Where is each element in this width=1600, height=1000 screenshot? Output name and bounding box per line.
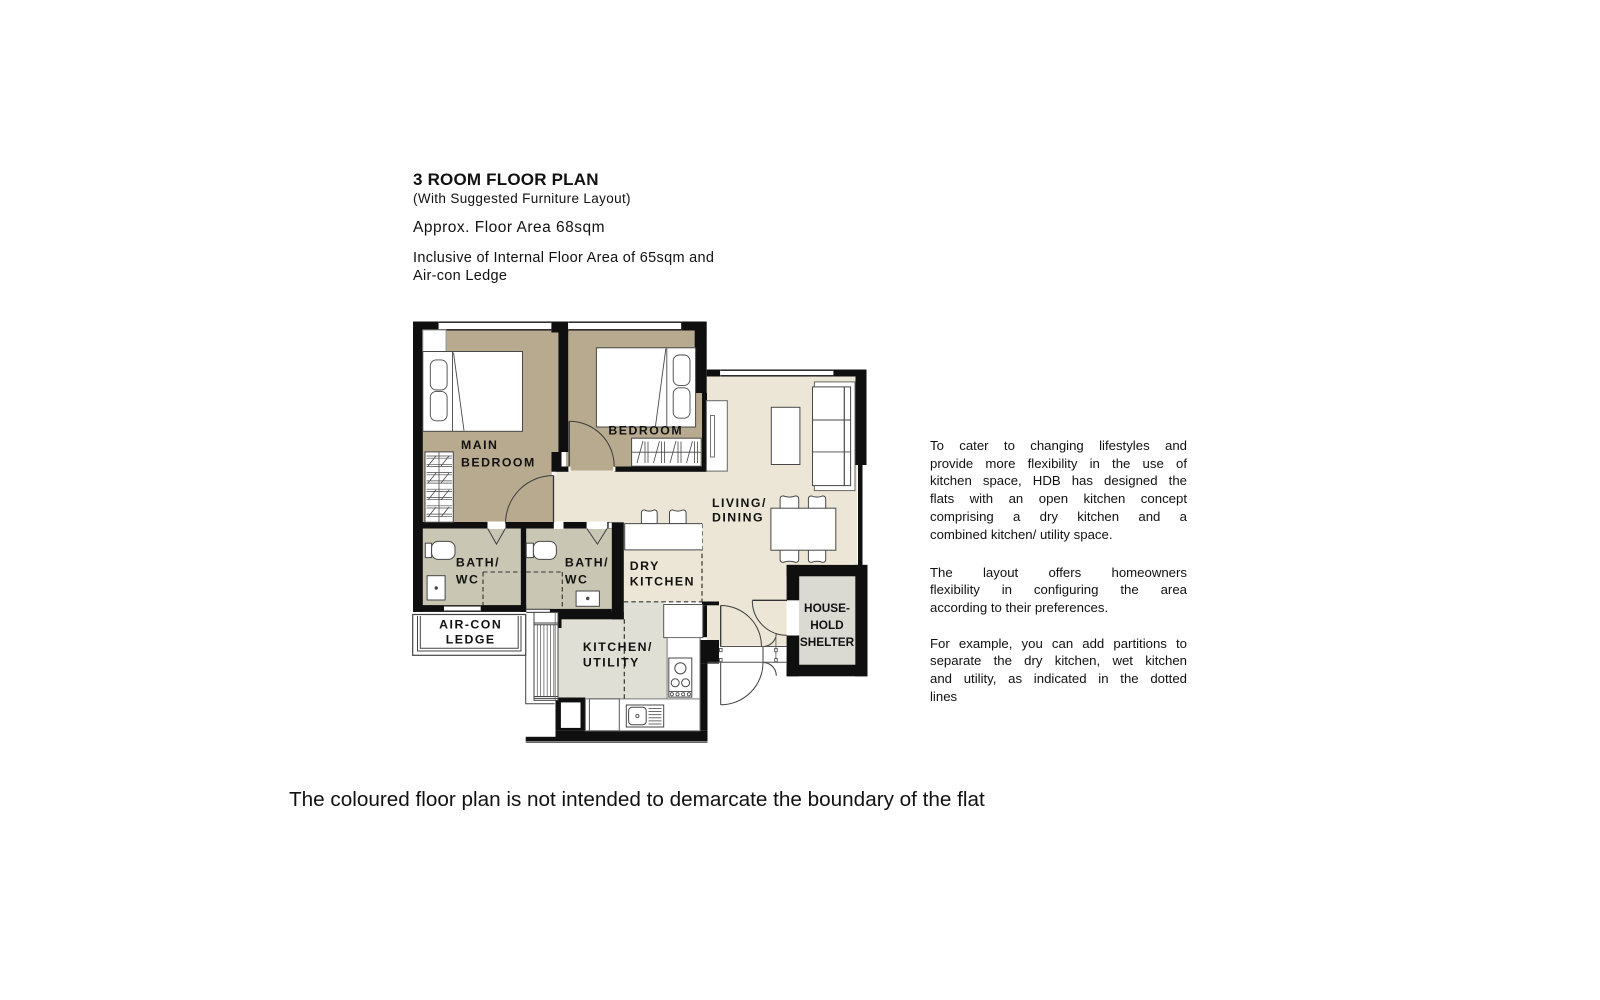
svg-text:MAIN: MAIN: [461, 438, 498, 452]
svg-text:BATH/: BATH/: [565, 556, 609, 570]
svg-text:KITCHEN: KITCHEN: [630, 575, 695, 589]
svg-text:DRY: DRY: [630, 559, 660, 573]
svg-text:HOLD: HOLD: [810, 618, 844, 632]
svg-text:LIVING/: LIVING/: [712, 496, 767, 510]
svg-text:KITCHEN/: KITCHEN/: [583, 640, 653, 654]
svg-text:SHELTER: SHELTER: [800, 635, 855, 649]
svg-text:BEDROOM: BEDROOM: [608, 424, 683, 438]
svg-text:DINING: DINING: [712, 511, 764, 525]
svg-text:UTILITY: UTILITY: [583, 656, 640, 670]
svg-text:BATH/: BATH/: [456, 556, 500, 570]
svg-text:WC: WC: [456, 573, 480, 587]
svg-text:HOUSE-: HOUSE-: [804, 601, 850, 615]
svg-text:AIR-CON: AIR-CON: [439, 618, 502, 632]
svg-text:BEDROOM: BEDROOM: [461, 456, 536, 470]
svg-text:WC: WC: [565, 573, 589, 587]
svg-text:LEDGE: LEDGE: [446, 633, 496, 647]
